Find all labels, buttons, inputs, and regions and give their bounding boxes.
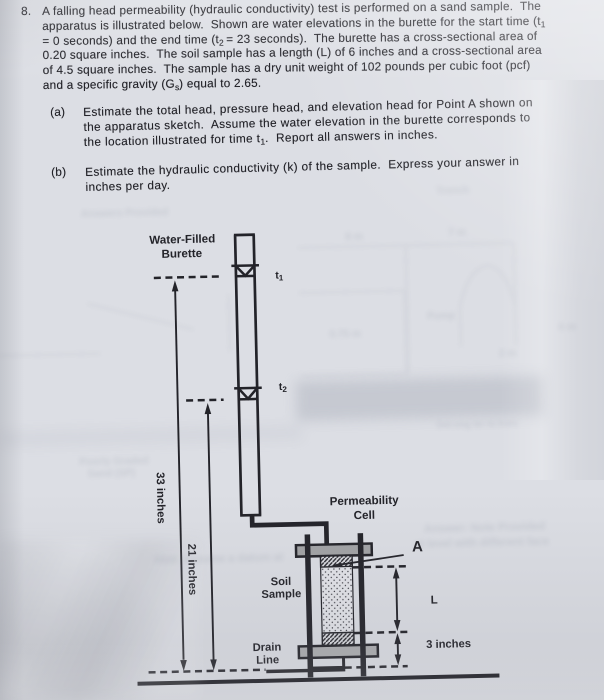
svg-text:21 inches: 21 inches — [185, 544, 198, 596]
svg-text:Soil: Soil — [271, 576, 292, 588]
svg-text:L: L — [431, 594, 438, 606]
svg-text:Burette: Burette — [161, 247, 202, 261]
svg-text:Sample: Sample — [261, 588, 301, 601]
svg-text:Cell: Cell — [354, 509, 376, 522]
svg-text:A: A — [412, 538, 423, 555]
svg-text:Water-Filled: Water-Filled — [149, 232, 215, 246]
svg-text:3 inches: 3 inches — [426, 638, 471, 651]
svg-text:33 inches: 33 inches — [154, 472, 167, 524]
svg-text:t1: t1 — [275, 269, 284, 282]
svg-text:t2: t2 — [279, 381, 288, 394]
svg-text:Permeability: Permeability — [330, 494, 400, 509]
svg-text:Drain: Drain — [253, 641, 282, 654]
svg-text:Line: Line — [256, 654, 279, 667]
